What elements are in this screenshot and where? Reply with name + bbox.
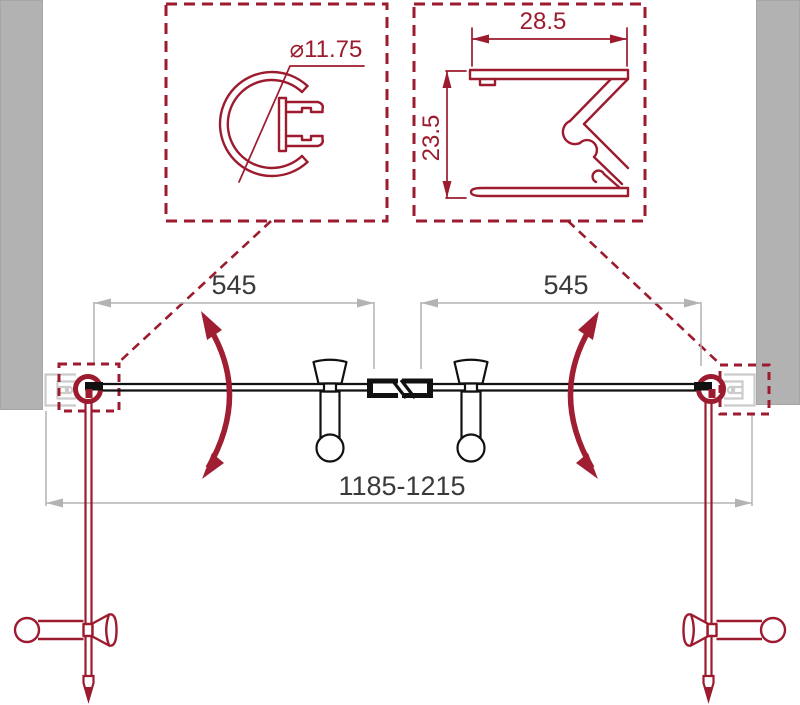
wall-mount-profile-right — [724, 375, 755, 406]
left-door-width-label: 545 — [201, 272, 267, 299]
knob-side-left — [15, 614, 117, 645]
wall-mount-profile-left — [46, 375, 77, 406]
overall-width-label: 1185-1215 — [330, 473, 474, 500]
profile-width-label: 28.5 — [508, 10, 578, 34]
technical-drawing-canvas: ⌀11.75 28.5 23.5 545 545 1185-1215 — [0, 0, 800, 705]
wall-left — [0, 0, 43, 410]
magnet-closure — [367, 379, 433, 399]
diameter-label: ⌀11.75 — [281, 38, 371, 62]
swing-arrow-left — [201, 311, 230, 479]
door-edge-left — [84, 402, 94, 700]
profile-height-label: 23.5 — [420, 103, 444, 173]
door-edge-right — [704, 402, 714, 700]
swing-arrow-right — [570, 311, 599, 479]
right-door-width-label: 545 — [533, 272, 599, 299]
handle-plan-left — [314, 360, 347, 462]
wall-right — [756, 0, 800, 405]
line-art — [0, 0, 800, 705]
handle-plan-right — [455, 360, 488, 462]
pivot-hinge-left — [76, 377, 104, 402]
knob-side-right — [684, 614, 786, 645]
